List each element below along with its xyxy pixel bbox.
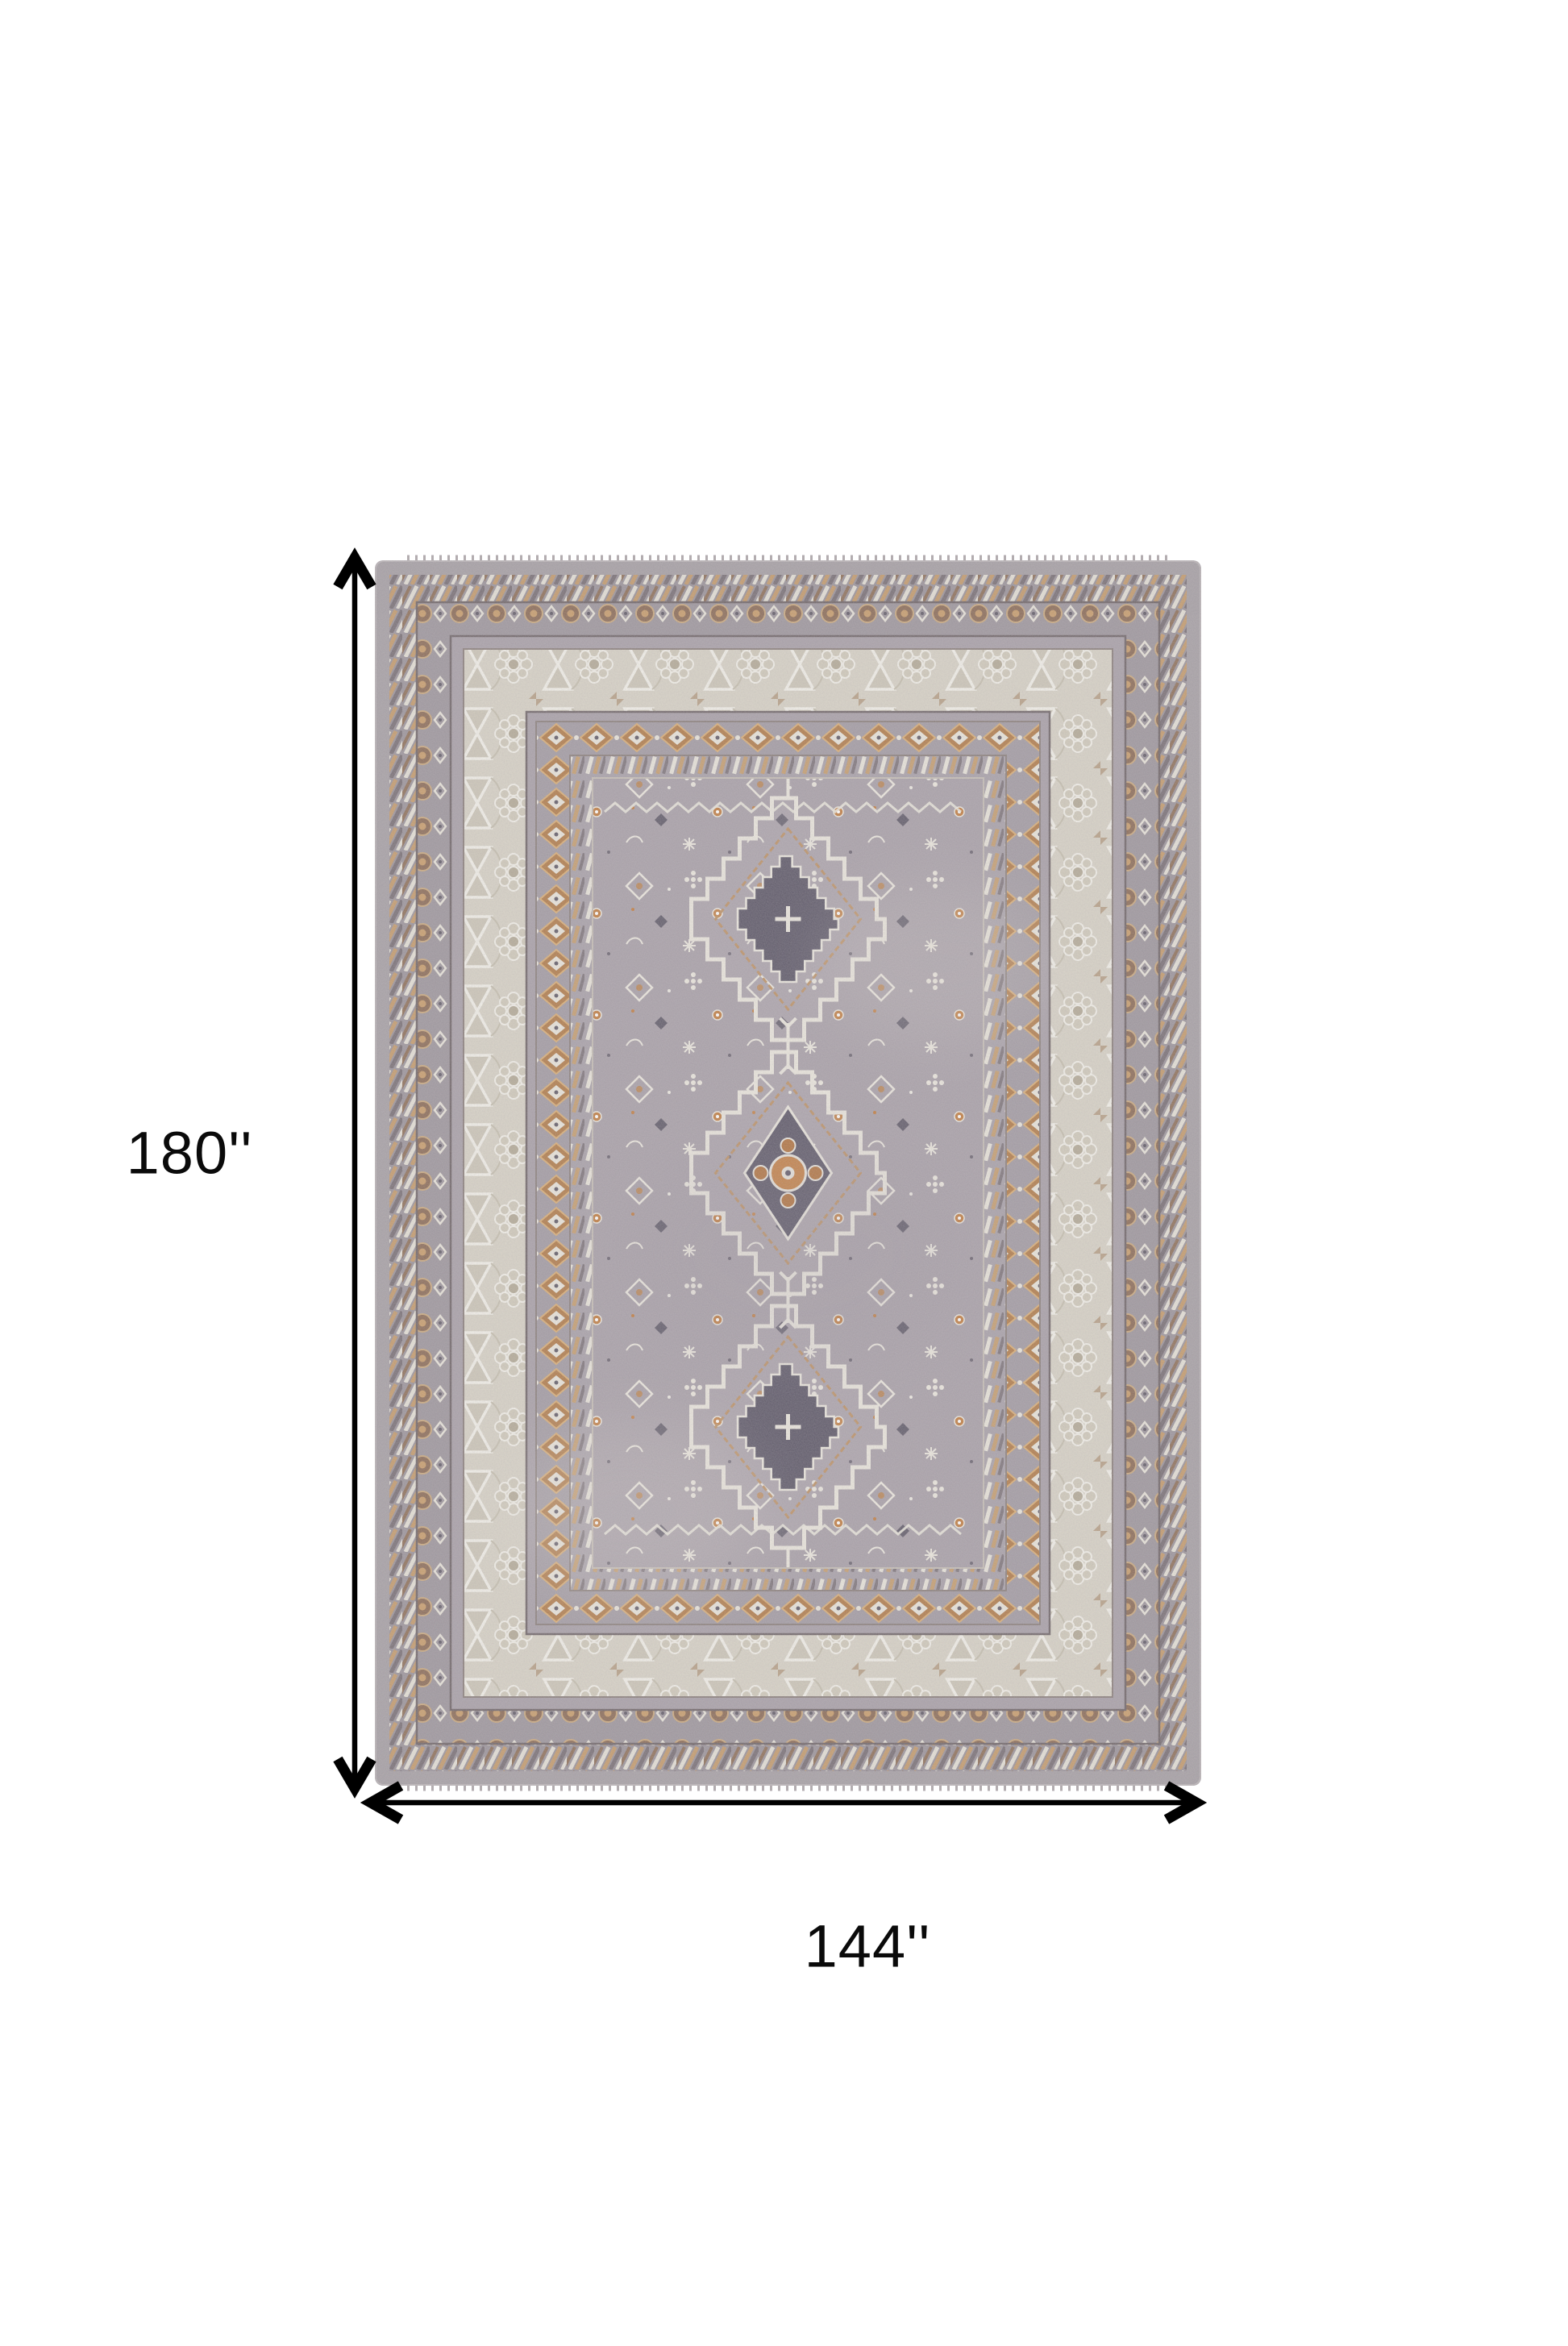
height-label: 180'' [127, 1119, 253, 1188]
width-arrow [371, 1786, 1196, 1820]
width-label: 144'' [805, 1912, 931, 1981]
product-dimension-image: 180'' 144'' [0, 0, 1568, 2346]
rug-image [375, 560, 1201, 1786]
height-arrow [338, 558, 372, 1788]
